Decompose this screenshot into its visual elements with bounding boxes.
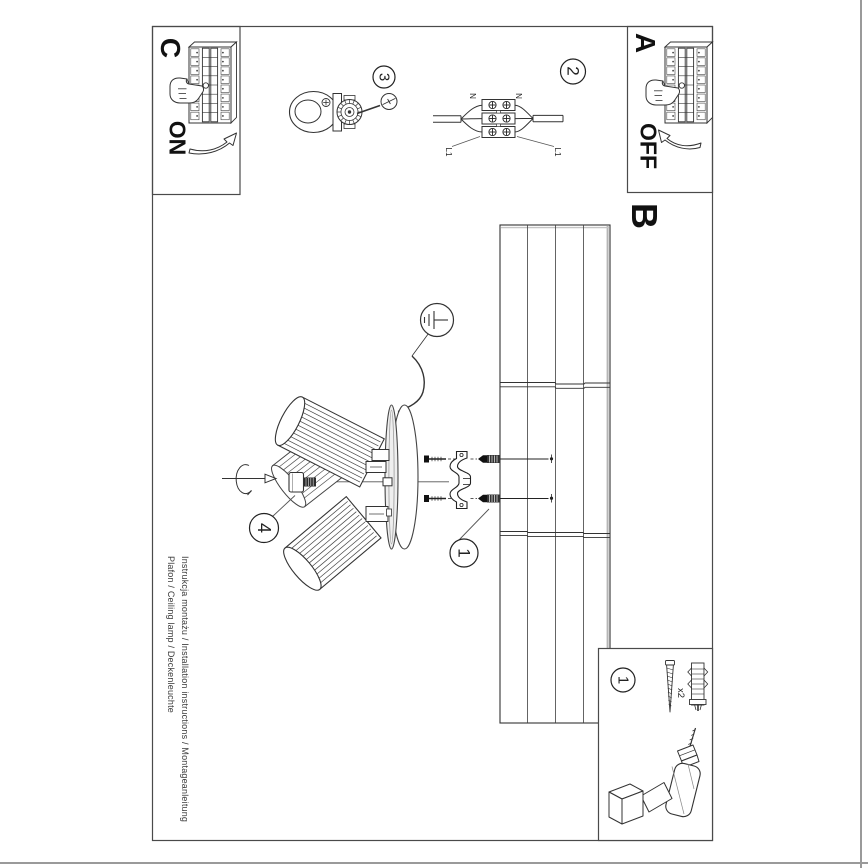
footer-product-line: Plafon / Ceiling lamp / Deckenleuchte [166,556,176,713]
wire-l1-right: L1 [553,148,561,157]
parts-step-number: 1 [616,676,631,684]
footer-title-line: Instrukcja montażu / Installation instru… [180,556,190,822]
instruction-sheet: C ON A OFF B 2 3 1 4 1 N N L1 L1 x2 Inst… [0,0,868,868]
ground-wire [398,356,424,412]
on-arrow-icon [189,133,237,154]
off-label: OFF [637,123,660,169]
step2-number: 2 [565,66,582,75]
on-label: ON [166,121,189,156]
ceiling-panel [500,225,610,723]
ground-icon [398,304,454,412]
wire-l1-left: L1 [444,148,452,157]
wire-n-left: N [468,93,476,99]
section-b-label: B [626,203,662,229]
step1-number: 1 [456,548,473,557]
screwdriver-icon [357,94,397,114]
canopy-stud [383,478,392,486]
page-edge-lines [0,0,868,868]
step4-number: 4 [255,523,273,533]
line-art [0,0,868,868]
box-a-label: A [631,33,659,53]
off-arrow-icon [659,130,702,149]
canopy [385,405,418,549]
box-c-label: C [156,38,184,58]
step3-number: 3 [377,73,392,81]
bracket-strap [450,452,471,509]
wire-n-right: N [514,93,522,99]
parts-quantity: x2 [675,688,685,698]
wall-plug-icon [688,663,708,711]
rotation-arrow-icon [222,465,276,495]
lamp-assembly [222,393,449,595]
